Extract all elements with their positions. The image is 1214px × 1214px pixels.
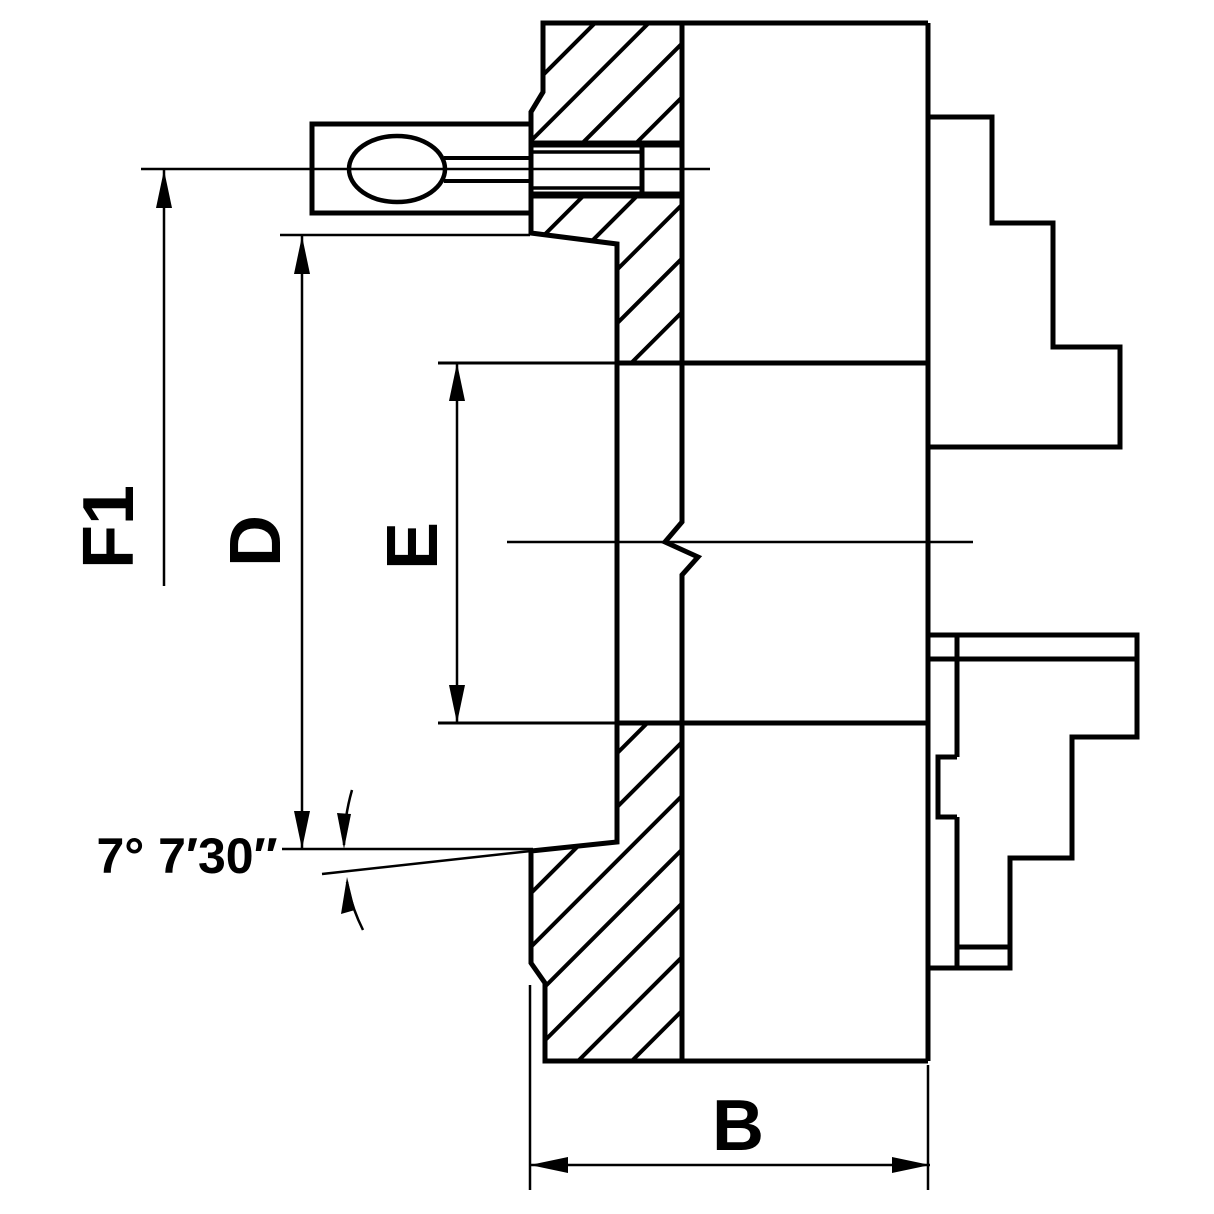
d-label: D (216, 515, 296, 567)
b-label: B (712, 1086, 764, 1166)
e-label: E (373, 522, 453, 570)
chuck-section-drawing: F1 D E 7° 7′30″ B (0, 0, 1214, 1214)
f1-label: F1 (69, 485, 149, 569)
technical-drawing-page: F1 D E 7° 7′30″ B (0, 0, 1214, 1214)
hatched-flange-top (531, 23, 682, 143)
taper-angle-label: 7° 7′30″ (96, 828, 277, 884)
